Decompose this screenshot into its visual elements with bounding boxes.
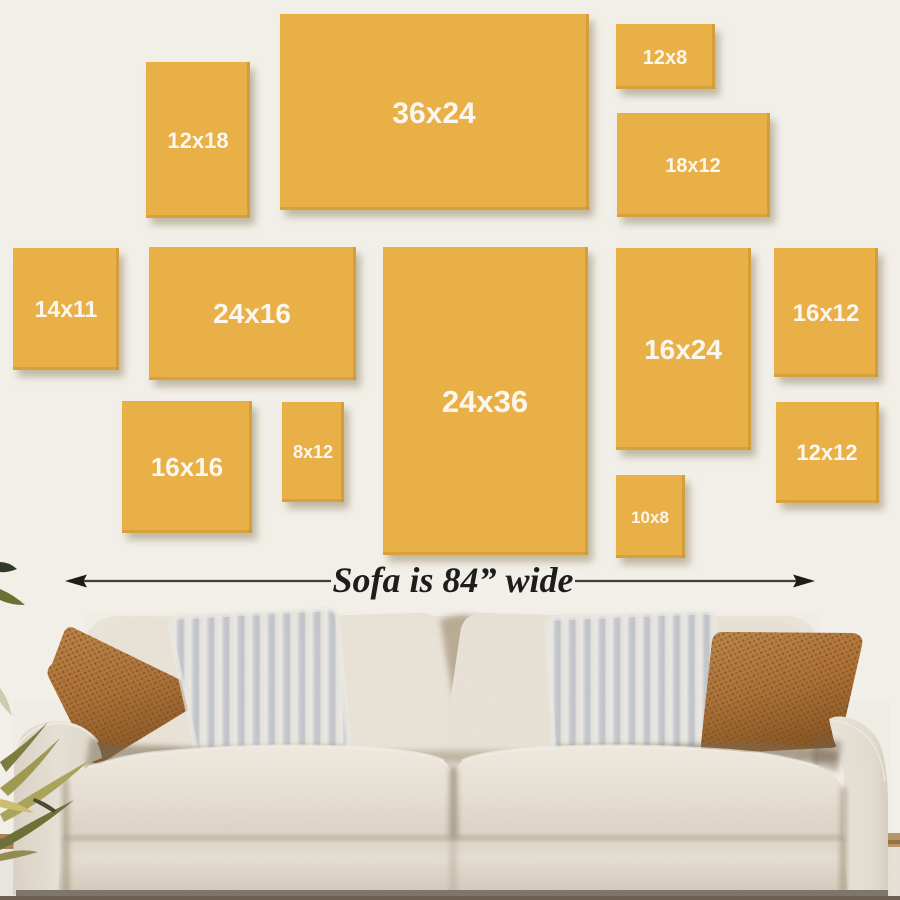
svg-text:24x16: 24x16	[213, 298, 291, 329]
svg-text:12x8: 12x8	[643, 47, 688, 69]
svg-text:14x11: 14x11	[35, 296, 98, 322]
svg-text:36x24: 36x24	[392, 97, 476, 130]
svg-text:10x8: 10x8	[631, 508, 669, 527]
svg-text:16x24: 16x24	[644, 334, 722, 365]
svg-text:18x12: 18x12	[665, 155, 721, 177]
svg-text:24x36: 24x36	[442, 384, 528, 419]
svg-text:16x12: 16x12	[793, 300, 860, 327]
svg-text:12x18: 12x18	[167, 128, 228, 153]
svg-text:8x12: 8x12	[293, 442, 333, 462]
svg-text:16x16: 16x16	[151, 452, 223, 482]
svg-text:Sofa is 84” wide: Sofa is 84” wide	[332, 560, 573, 600]
svg-text:12x12: 12x12	[796, 440, 857, 465]
